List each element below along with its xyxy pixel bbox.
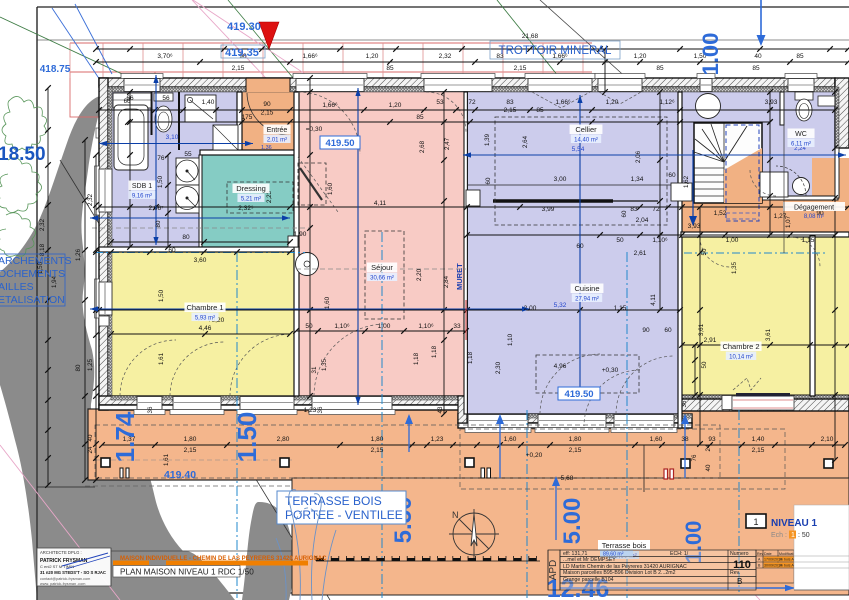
svg-text:85: 85 xyxy=(416,114,424,121)
svg-text:43: 43 xyxy=(437,406,444,413)
svg-text:1,25: 1,25 xyxy=(87,358,94,371)
svg-text:2,06: 2,06 xyxy=(635,150,642,163)
svg-text:60: 60 xyxy=(485,177,492,184)
svg-text:5,93 m²: 5,93 m² xyxy=(195,316,215,322)
svg-text:OCHEMENTS: OCHEMENTS xyxy=(0,268,65,280)
svg-text:B: B xyxy=(737,577,742,586)
svg-text:1,10⁶: 1,10⁶ xyxy=(418,323,434,330)
svg-text:6,11 m²: 6,11 m² xyxy=(791,142,811,148)
svg-text:60: 60 xyxy=(621,210,628,217)
svg-text:1.74: 1.74 xyxy=(110,411,140,462)
svg-text:40: 40 xyxy=(87,434,94,441)
svg-text:1,00: 1,00 xyxy=(726,237,739,244)
svg-text:...mel et Mr DEMPSEY: ...mel et Mr DEMPSEY xyxy=(563,557,616,563)
svg-text:AILLES: AILLES xyxy=(0,281,34,293)
svg-text:5,54: 5,54 xyxy=(572,146,585,153)
svg-text:3,93: 3,93 xyxy=(688,223,701,230)
svg-text:Dressing: Dressing xyxy=(236,184,266,193)
svg-text:WC: WC xyxy=(795,131,807,138)
svg-text:90: 90 xyxy=(263,101,271,108)
svg-text:2,64: 2,64 xyxy=(522,135,529,148)
svg-text:1,39: 1,39 xyxy=(484,133,491,146)
svg-text:Date: Date xyxy=(764,552,772,556)
svg-text:1,80: 1,80 xyxy=(569,436,582,443)
svg-text:72: 72 xyxy=(652,206,660,213)
svg-text:80: 80 xyxy=(182,234,190,241)
svg-text:1,61: 1,61 xyxy=(163,453,170,466)
svg-text:2,01 m²: 2,01 m² xyxy=(267,138,287,144)
svg-text:2,47: 2,47 xyxy=(444,137,451,150)
svg-text:2,91: 2,91 xyxy=(704,337,717,344)
svg-text:24: 24 xyxy=(705,444,712,451)
svg-text:2,04: 2,04 xyxy=(636,217,649,224)
svg-text:1,12⁶: 1,12⁶ xyxy=(659,99,675,106)
svg-text:55: 55 xyxy=(184,151,192,158)
svg-text:1: 1 xyxy=(753,517,758,527)
svg-text:9,16 m²: 9,16 m² xyxy=(132,194,152,200)
svg-text:2,15: 2,15 xyxy=(232,65,245,72)
svg-text:2,00: 2,00 xyxy=(524,305,537,312)
svg-text:93: 93 xyxy=(708,436,716,443)
svg-text:1,80: 1,80 xyxy=(184,436,197,443)
svg-text:419.40: 419.40 xyxy=(164,469,196,481)
svg-text:2,15: 2,15 xyxy=(514,65,527,72)
svg-text:Grange parcelle B104: Grange parcelle B104 xyxy=(563,577,614,583)
svg-text:Chambre 1: Chambre 1 xyxy=(186,303,223,312)
svg-text:PLAN MAISON NIVEAU 1 RDC 1/50: PLAN MAISON NIVEAU 1 RDC 1/50 xyxy=(120,568,254,577)
svg-text:80: 80 xyxy=(75,364,82,371)
svg-text:ARCHEMENTS: ARCHEMENTS xyxy=(0,255,72,267)
svg-text:2,15: 2,15 xyxy=(184,447,197,454)
svg-text:36: 36 xyxy=(147,406,154,413)
svg-text:Terrasse bois: Terrasse bois xyxy=(602,541,647,550)
svg-text:14,40 m²: 14,40 m² xyxy=(574,138,598,144)
svg-text:1,18: 1,18 xyxy=(413,352,420,365)
svg-text:1,40: 1,40 xyxy=(202,99,215,106)
svg-text:contact@patrick-frysman.com: contact@patrick-frysman.com xyxy=(40,577,90,581)
svg-text:50: 50 xyxy=(616,237,624,244)
svg-text:8,08 m²: 8,08 m² xyxy=(804,214,824,220)
svg-text:419.35: 419.35 xyxy=(225,47,259,59)
svg-text:1,15: 1,15 xyxy=(802,237,815,244)
svg-text:50: 50 xyxy=(305,323,313,330)
svg-text:33: 33 xyxy=(453,323,461,330)
svg-text:85: 85 xyxy=(796,53,804,60)
svg-text:2,32: 2,32 xyxy=(87,193,94,206)
svg-text:Dégagement: Dégagement xyxy=(794,205,834,212)
svg-text:1,35: 1,35 xyxy=(321,358,328,371)
svg-text:1,10: 1,10 xyxy=(507,333,514,346)
svg-text:1,35: 1,35 xyxy=(731,261,738,274)
svg-text:www. patrick-frysman .com: www. patrick-frysman .com xyxy=(40,582,85,586)
svg-text:1,50: 1,50 xyxy=(158,289,165,302)
svg-text:2,32⁹: 2,32⁹ xyxy=(238,205,254,212)
svg-text:2,06⁷: 2,06⁷ xyxy=(148,205,164,212)
svg-text:Chambre 2: Chambre 2 xyxy=(722,342,759,351)
svg-text:3,61: 3,61 xyxy=(698,323,705,336)
svg-text:1,50: 1,50 xyxy=(157,175,164,188)
svg-text:2,20: 2,20 xyxy=(416,268,423,281)
svg-text:5,32: 5,32 xyxy=(554,302,567,309)
svg-text:90: 90 xyxy=(642,327,650,334)
svg-text:1.50: 1.50 xyxy=(232,412,262,463)
svg-text:110: 110 xyxy=(733,559,751,571)
svg-text:SDB 1: SDB 1 xyxy=(132,183,152,190)
svg-text:85: 85 xyxy=(656,65,664,72)
svg-text:66: 66 xyxy=(126,95,134,102)
svg-text:Maison parcelles B95-B96 Divis: Maison parcelles B95-B96 Division Lot B … xyxy=(563,570,676,576)
svg-text:2,15: 2,15 xyxy=(371,447,384,454)
svg-text:1,60: 1,60 xyxy=(650,436,663,443)
svg-text:5.00: 5.00 xyxy=(559,498,586,545)
svg-text:18.50: 18.50 xyxy=(0,144,46,165)
svg-text:419.50: 419.50 xyxy=(564,389,593,400)
svg-text:80: 80 xyxy=(155,220,162,227)
svg-text:40: 40 xyxy=(705,464,712,471)
svg-text:418.75: 418.75 xyxy=(40,64,71,75)
svg-text:1,36: 1,36 xyxy=(261,145,272,151)
svg-text:Entrée: Entrée xyxy=(267,127,288,134)
svg-text:1,10⁶: 1,10⁶ xyxy=(652,237,668,244)
svg-text:36: 36 xyxy=(317,406,324,413)
svg-text:85: 85 xyxy=(386,65,394,72)
svg-text:1,40: 1,40 xyxy=(752,436,765,443)
svg-text:1,00: 1,00 xyxy=(378,323,391,330)
svg-text:NIVEAU 1: NIVEAU 1 xyxy=(771,518,818,529)
svg-text:2,84: 2,84 xyxy=(443,275,450,288)
svg-text:89,60 m²: 89,60 m² xyxy=(603,552,624,558)
svg-text:1,20: 1,20 xyxy=(366,53,379,60)
svg-text:1,20: 1,20 xyxy=(606,99,619,106)
svg-text:ECH: 1/: ECH: 1/ xyxy=(670,551,689,557)
svg-text:31: 31 xyxy=(311,366,318,373)
svg-text:+0,30: +0,30 xyxy=(602,367,619,374)
svg-text:2,15: 2,15 xyxy=(504,107,517,114)
svg-text:5,21 m²: 5,21 m² xyxy=(241,197,261,203)
svg-text:27,94 m²: 27,94 m² xyxy=(575,297,599,303)
svg-text:1,20: 1,20 xyxy=(389,102,402,109)
svg-text:3,60: 3,60 xyxy=(194,257,207,264)
svg-text:TROTTOIR MINERAL: TROTTOIR MINERAL xyxy=(499,45,612,57)
svg-text:2,61: 2,61 xyxy=(634,250,647,257)
svg-text:3,00: 3,00 xyxy=(554,176,567,183)
svg-text:=0,30: =0,30 xyxy=(306,126,323,133)
svg-text:72: 72 xyxy=(468,99,476,106)
svg-text:1,18: 1,18 xyxy=(467,351,474,364)
svg-text:4,46: 4,46 xyxy=(199,325,212,332)
svg-text:1,23: 1,23 xyxy=(304,407,317,414)
svg-text:21,68: 21,68 xyxy=(522,33,539,40)
svg-text:1,66⁶: 1,66⁶ xyxy=(322,102,338,109)
svg-text:31 n20 MG STEDS'T - SO S RJAC: 31 n20 MG STEDS'T - SO S RJAC xyxy=(40,570,106,575)
svg-text:TERRASSE BOIS: TERRASSE BOIS xyxy=(285,494,382,508)
svg-text:56: 56 xyxy=(162,95,170,102)
svg-text:1,18: 1,18 xyxy=(431,345,438,358)
svg-text:50: 50 xyxy=(701,361,708,368)
svg-text:2,15: 2,15 xyxy=(261,110,274,117)
svg-text:83: 83 xyxy=(506,99,514,106)
svg-text:2,68: 2,68 xyxy=(419,140,426,153)
svg-text:85: 85 xyxy=(752,65,760,72)
svg-text:3,99: 3,99 xyxy=(542,206,555,213)
svg-text:N: N xyxy=(452,510,459,520)
svg-text:24: 24 xyxy=(87,446,94,453)
svg-text:1: 1 xyxy=(791,532,795,539)
svg-text:2,32: 2,32 xyxy=(439,53,452,60)
svg-text:Rev: Rev xyxy=(757,552,764,556)
svg-text:5,68: 5,68 xyxy=(561,475,574,482)
svg-text:60: 60 xyxy=(668,172,676,179)
svg-text:1,52: 1,52 xyxy=(714,210,727,217)
svg-text:1,60: 1,60 xyxy=(327,182,334,195)
svg-text:4,11: 4,11 xyxy=(650,294,657,306)
svg-text:1,66⁶: 1,66⁶ xyxy=(302,53,318,60)
svg-text:175: 175 xyxy=(242,114,253,121)
svg-text:3,70⁶: 3,70⁶ xyxy=(157,53,173,60)
svg-text:1,80: 1,80 xyxy=(371,436,384,443)
svg-text:76⁷: 76⁷ xyxy=(157,155,167,162)
svg-text:1,23: 1,23 xyxy=(431,436,444,443)
svg-text:PORTEE - VENTILEE: PORTEE - VENTILEE xyxy=(285,508,403,522)
svg-text:38: 38 xyxy=(681,436,689,443)
svg-text:53: 53 xyxy=(436,99,444,106)
svg-text:60: 60 xyxy=(664,327,672,334)
svg-text:1,07: 1,07 xyxy=(785,215,792,228)
svg-text:1,60: 1,60 xyxy=(504,436,517,443)
svg-text:36: 36 xyxy=(681,400,688,407)
svg-text:APD: APD xyxy=(548,560,559,581)
svg-text:3,93: 3,93 xyxy=(765,99,778,106)
svg-text:Cellier: Cellier xyxy=(575,125,597,134)
svg-text:1,26: 1,26 xyxy=(75,248,82,261)
svg-text:40: 40 xyxy=(754,53,762,60)
svg-text:ARCHITECTE DPLG :: ARCHITECTE DPLG : xyxy=(40,550,82,555)
svg-text:MURET: MURET xyxy=(455,263,464,290)
svg-text:Numero: Numero xyxy=(730,551,749,557)
svg-text:2,80: 2,80 xyxy=(277,436,290,443)
svg-text:Cuisine: Cuisine xyxy=(574,284,599,293)
svg-text:2,15: 2,15 xyxy=(752,447,765,454)
svg-text:76: 76 xyxy=(691,454,698,461)
svg-text:3,10: 3,10 xyxy=(166,134,179,141)
svg-text:85: 85 xyxy=(536,107,544,114)
svg-text:60: 60 xyxy=(168,247,176,254)
svg-text:10,14 m²: 10,14 m² xyxy=(729,355,753,361)
svg-text:30,66 m²: 30,66 m² xyxy=(370,276,394,282)
svg-text:1,66⁶: 1,66⁶ xyxy=(555,99,571,106)
svg-text:60: 60 xyxy=(576,243,584,250)
svg-text:: 50: : 50 xyxy=(798,532,810,539)
svg-text:419.50: 419.50 xyxy=(325,138,354,149)
svg-text:1.00: 1.00 xyxy=(698,33,723,76)
svg-text:3,61: 3,61 xyxy=(765,328,772,341)
svg-text:2,15: 2,15 xyxy=(569,447,582,454)
svg-text:ETALISATION: ETALISATION xyxy=(0,294,65,306)
svg-text:1,20: 1,20 xyxy=(634,53,647,60)
svg-text:1,15: 1,15 xyxy=(614,305,627,312)
svg-text:4,96: 4,96 xyxy=(554,363,567,370)
svg-text:1,61: 1,61 xyxy=(158,352,165,365)
svg-text:1,34: 1,34 xyxy=(631,176,644,183)
svg-text:1,10⁶: 1,10⁶ xyxy=(334,323,350,330)
svg-text:Ech :: Ech : xyxy=(771,532,787,539)
svg-text:1,62: 1,62 xyxy=(683,175,690,188)
svg-text:50: 50 xyxy=(701,248,708,255)
svg-text:4,11: 4,11 xyxy=(374,200,387,207)
svg-text:Séjour: Séjour xyxy=(371,263,393,272)
svg-text:419.30: 419.30 xyxy=(227,21,261,33)
svg-text:2,10: 2,10 xyxy=(821,436,834,443)
svg-text:1,90: 1,90 xyxy=(294,231,307,238)
svg-text:1,60: 1,60 xyxy=(324,296,331,309)
svg-text:+0,20: +0,20 xyxy=(526,452,543,459)
svg-text:2,30: 2,30 xyxy=(495,361,502,374)
svg-text:2,32: 2,32 xyxy=(39,218,46,231)
svg-text:83: 83 xyxy=(630,206,638,213)
